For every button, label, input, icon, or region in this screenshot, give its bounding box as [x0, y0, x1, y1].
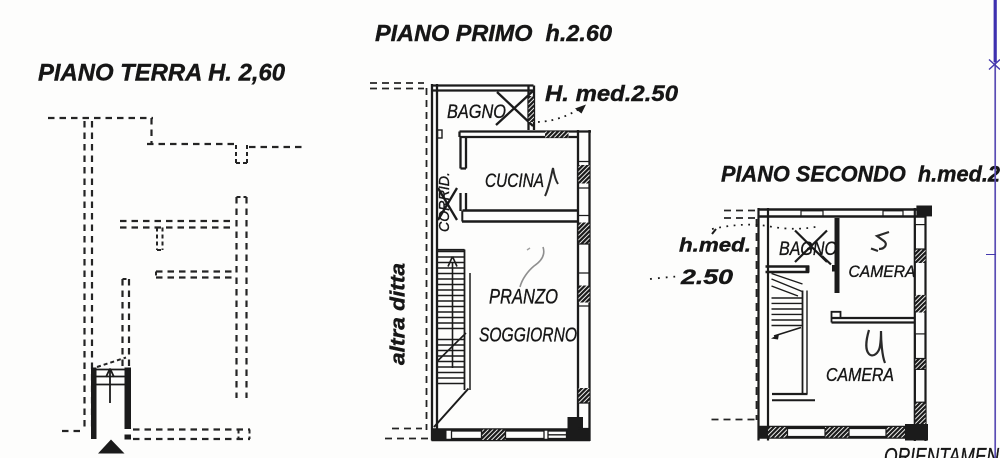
svg-text:CORRID.: CORRID.: [437, 172, 453, 232]
svg-text:PRANZO: PRANZO: [489, 286, 558, 309]
svg-text:BAGNO: BAGNO: [779, 239, 837, 260]
svg-text:ORIENTAMENTO: ORIENTAMENTO: [884, 443, 1000, 458]
svg-text:PIANO PRIMO h.2.60: PIANO PRIMO h.2.60: [375, 20, 612, 46]
svg-text:BAGNO: BAGNO: [447, 102, 506, 123]
svg-text:2.50: 2.50: [680, 266, 734, 289]
svg-text:CAMERA: CAMERA: [849, 263, 916, 281]
svg-text:altra ditta: altra ditta: [388, 263, 410, 365]
svg-text:SOGGIORNO: SOGGIORNO: [479, 324, 577, 347]
svg-text:PIANO SECONDO h.med.2: PIANO SECONDO h.med.2: [721, 162, 1000, 187]
svg-text:CAMERA: CAMERA: [826, 364, 894, 385]
svg-text:h.med.: h.med.: [679, 235, 751, 257]
svg-text:CUCINA: CUCINA: [485, 171, 544, 192]
svg-text:PIANO TERRA H. 2,60: PIANO TERRA H. 2,60: [38, 60, 286, 87]
svg-text:H. med.2.50: H. med.2.50: [545, 81, 679, 106]
